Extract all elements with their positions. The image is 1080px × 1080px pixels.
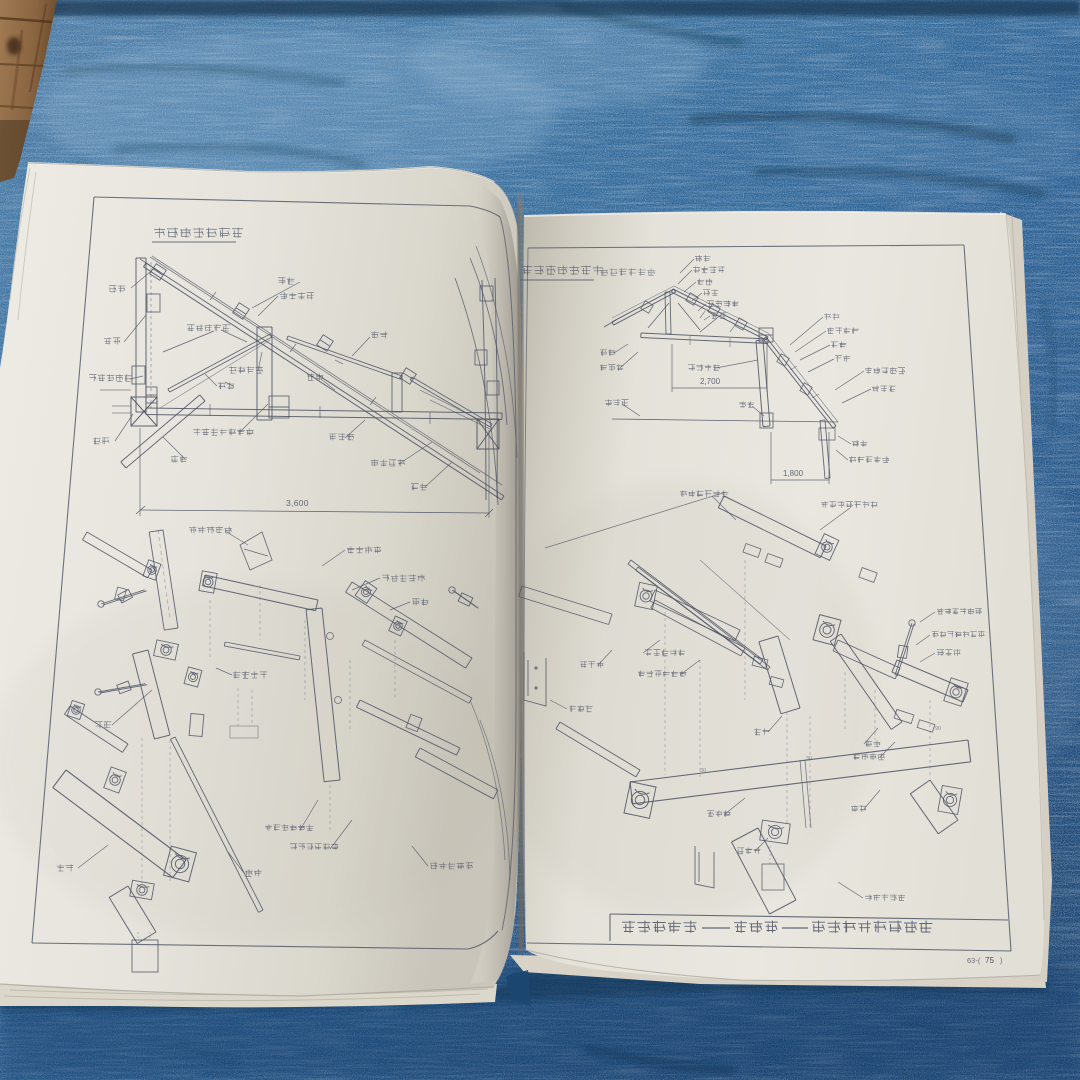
svg-text:1,800: 1,800 [783,469,804,478]
svg-text:30: 30 [806,756,812,762]
svg-text:90: 90 [935,726,941,732]
svg-text:30: 30 [700,768,706,774]
svg-text:2,700: 2,700 [700,377,721,386]
svg-text:63-(: 63-( [967,956,981,965]
svg-text:75: 75 [985,956,994,965]
svg-text:3,600: 3,600 [286,498,309,508]
